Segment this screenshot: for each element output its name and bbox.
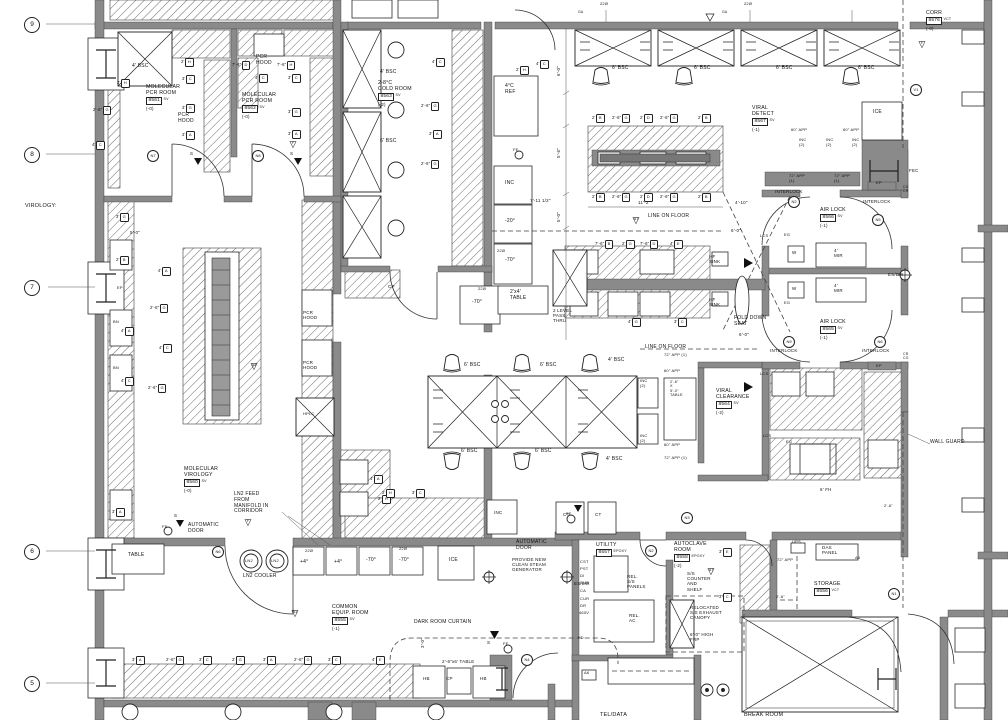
room-stamp: MOLECULARPCR ROOM8561SV(-0) [146, 84, 180, 111]
casework-tag: 2'-6"G [148, 384, 166, 393]
casework-tag: 3'C [412, 489, 425, 498]
plan-label: 72" APP (1) [664, 456, 687, 461]
plan-label: CR CG [903, 352, 909, 360]
casework-tag: 3'E [719, 548, 732, 557]
door-tag: N5 [872, 214, 884, 226]
room-stamp: COMMONEQUIP. ROOM8555SV(-1) [332, 604, 369, 631]
plan-label: 2 LEVEL PASS THRU [553, 308, 572, 324]
plan-label: TABLE [128, 553, 144, 559]
plan-label: BN [113, 366, 119, 371]
plan-label: 4'-10" [735, 200, 748, 205]
door-tag: N3 [681, 512, 693, 524]
plan-label: +4° [334, 560, 342, 566]
casework-tag: 3'A [182, 131, 195, 140]
casework-tag: 4'C [159, 344, 172, 353]
plan-label: FE [503, 642, 509, 647]
plan-label: LINE ON FLOOR [645, 345, 686, 351]
plan-label: ICE [449, 558, 458, 564]
casework-tag: 3'A [288, 130, 301, 139]
plan-label: 4' BSC [132, 64, 149, 70]
casework-tag: 4'A [370, 475, 383, 484]
casework-tag: 4'C [255, 74, 268, 83]
plan-label: -70° [399, 558, 409, 564]
plan-label: 72" APP (1) [664, 353, 687, 358]
plan-label: PST [580, 567, 588, 572]
plan-label: PROVIDE NEW CLEAN STEAM GENERATOR [512, 557, 546, 573]
plan-label: DI [580, 574, 584, 579]
plan-label: 6' BSC [540, 363, 557, 369]
plan-label: INC (2) [799, 138, 807, 147]
plan-label: CST [580, 560, 589, 565]
room-stamp: AUTOCLAVEROOM8558EPOXY(-2) [674, 541, 707, 568]
casework-tag: 3'C [674, 318, 687, 327]
casework-tag: 2'B [592, 193, 605, 202]
plan-label: S [190, 151, 193, 156]
plan-label: 4' BSC [606, 457, 623, 463]
plan-label: REL. AC [629, 613, 640, 623]
casework-tag: 2'-6"G [421, 102, 439, 111]
plan-label: INC [494, 510, 502, 515]
casework-tag: 2'H [382, 489, 395, 498]
room-stamp: MOLECULARPCR ROOM8562SV(-0) [242, 92, 276, 119]
plan-label: 6' BSC [776, 66, 793, 72]
plan-label: WALL GUARD [930, 440, 965, 446]
plan-label: PCR HOOD [256, 55, 272, 67]
plan-label: DR [580, 604, 586, 609]
room-stamp: CORR8576VCT(-0) [926, 10, 951, 31]
plan-label: PCR HOOD [303, 360, 317, 370]
casework-tag: 2'D [640, 114, 653, 123]
casework-tag: 3'A [112, 508, 125, 517]
casework-tag: 2'-6"G [93, 106, 111, 115]
plan-label: TEL/DATA [600, 712, 627, 718]
door-tag: N9 [783, 336, 795, 348]
plan-label: GA [722, 10, 727, 14]
casework-tag: 2'B [116, 256, 129, 265]
room-stamp: AIR LOCK8566SV(-1) [820, 207, 846, 228]
door-tag: N6 [212, 546, 224, 558]
plan-label: S [487, 640, 490, 645]
plan-label: 5'-0" [130, 230, 140, 235]
door-tag: N6 [874, 336, 886, 348]
plan-label: EP [876, 181, 882, 186]
plan-label: 4' MIR [834, 283, 843, 293]
plan-label: -70° [366, 558, 376, 564]
triangle-tag: ▽A7 [630, 216, 642, 224]
casework-tag: 7'-6"H [277, 61, 295, 70]
casework-tag: 3'A [132, 656, 145, 665]
casework-tag: 3'C [719, 593, 732, 602]
plan-label: CUR [580, 597, 589, 602]
casework-tag: 4'C [92, 141, 105, 150]
triangle-tag: ▽A1 [248, 362, 260, 370]
plan-label: 22Ø [478, 287, 486, 292]
casework-tag: 2'D [640, 193, 653, 202]
plan-label: 4°C REF [505, 84, 516, 96]
plan-label: CG CR [903, 185, 909, 193]
plan-label: FEC [909, 168, 919, 173]
plan-label: -70° [505, 258, 515, 264]
plan-label: 22Ø [305, 549, 313, 554]
plan-label: 6' FH [820, 487, 832, 492]
plan-label: LN2 COOLER [243, 574, 277, 580]
plan-label: EG [784, 233, 790, 238]
plan-label: 7'-11 1/2" [530, 198, 551, 203]
casework-tag: 2'B [698, 114, 711, 123]
casework-tag: 3'C [328, 656, 341, 665]
plan-label: 6'-0" [739, 332, 749, 337]
plan-label: 60" APP [664, 369, 680, 374]
room-stamp: 2-8°CCOLD ROOM8563SV(-2) [378, 80, 412, 107]
casework-tag: 2'H [516, 66, 529, 75]
room-stamp: MOLECULARVIROLOGY8560SV(-0) [184, 466, 218, 493]
plan-label: ICE [873, 110, 882, 116]
plan-label: 6' BSC [461, 449, 478, 455]
plan-label: 6'-0" HIGH FRP [690, 632, 713, 642]
casework-tag: 2'-6"G [166, 656, 184, 665]
room-stamp: VIRALDETECT8567SV(-1) [752, 105, 775, 132]
plan-label: PCR HOOD [303, 310, 317, 320]
plan-label: 5'-6" [556, 148, 561, 158]
labels-layer: 98765MOLECULARPCR ROOM8561SV(-0)MOLECULA… [0, 0, 1008, 720]
plan-label: 22Ø [497, 249, 505, 254]
plan-label: 72" APP (1) [789, 174, 805, 183]
plan-label: 72" APP [777, 558, 793, 563]
plan-label: GA [578, 10, 583, 14]
plan-label: INTERLOCK [770, 348, 798, 353]
plan-label: ES/EW [888, 272, 904, 277]
room-stamp: AIR LOCK8565SV(-1) [820, 319, 846, 340]
plan-label: EG [786, 440, 792, 445]
triangle-tag: ▽F [916, 40, 928, 48]
plan-label: 3'-0" [420, 638, 425, 648]
plan-label: 22Ø [399, 547, 407, 552]
plan-label: INC (2) [852, 138, 860, 147]
plan-label: DARK ROOM CURTAIN [414, 620, 471, 626]
plan-label: +4° [300, 560, 308, 566]
casework-tag: 4'C [432, 58, 445, 67]
plan-label: DAS PANEL [822, 545, 837, 555]
plan-label: CT [563, 512, 569, 517]
casework-tag: 2'B [698, 193, 711, 202]
plan-label: CT [595, 512, 601, 517]
plan-label: 22Ø [744, 2, 752, 7]
room-stamp: VIRALCLEARANCE8564SV(-2) [716, 388, 750, 415]
plan-label: HB [480, 676, 487, 681]
casework-tag: 2'-6"G [612, 193, 630, 202]
plan-label: EG [784, 301, 790, 306]
plan-label: 4' BSC [380, 70, 397, 76]
plan-label: BN [113, 320, 119, 325]
grid-bubble: 7 [24, 280, 40, 296]
plan-label: FOLD DOWN SEAT [734, 316, 766, 328]
plan-label: CUB [580, 581, 589, 586]
casework-tag: 7'-6"D [232, 61, 250, 70]
plan-label: 6' BSC [858, 66, 875, 72]
plan-label: 2'x4' TABLE [510, 290, 526, 302]
plan-label: INC (2) [640, 434, 648, 443]
triangle-tag: ▽F [287, 140, 299, 148]
casework-tag: 3'C [199, 656, 212, 665]
plan-label: INTERLOCK [775, 189, 803, 194]
plan-label: 60" APP [664, 443, 680, 448]
casework-tag: 2'-6"G [660, 193, 678, 202]
casework-tag: 3'A [429, 130, 442, 139]
plan-label: 4' BSC [608, 358, 625, 364]
plan-label: VIROLOGY: [25, 203, 57, 209]
plan-label: 6' BSC [535, 449, 552, 455]
plan-label: LCS [760, 234, 768, 239]
plan-label: CP [446, 676, 453, 681]
door-tag: N4 [521, 654, 533, 666]
plan-label: S [174, 513, 177, 518]
room-stamp: UTILITY8557EPOXY [596, 542, 627, 557]
plan-label: UPS [792, 540, 801, 545]
plan-label: 4' MIR [834, 248, 843, 258]
plan-label: 5'-0" [556, 212, 561, 222]
casework-tag: 2'-6"G [150, 304, 168, 313]
grid-bubble: 5 [24, 676, 40, 692]
casework-tag: 4'A [158, 267, 171, 276]
casework-tag: 3'G [182, 104, 195, 113]
door-tag: V1 [910, 84, 922, 96]
plan-label: LN2 [271, 559, 279, 564]
plan-label: 60" APP [843, 128, 859, 133]
plan-label: LINE ON FLOOR [648, 214, 689, 220]
triangle-tag: ▽A1 [289, 609, 301, 617]
plan-label: INTERLOCK [863, 199, 891, 204]
plan-label: FE [162, 525, 168, 530]
casework-tag: 2'-6"G [421, 160, 439, 169]
plan-label: HPLC [303, 412, 314, 417]
plan-label: INTERLOCK [862, 348, 890, 353]
plan-label: 60" APP [791, 128, 807, 133]
plan-label: AUTOMATIC DOOR [188, 523, 219, 535]
casework-tag: 3'C [288, 74, 301, 83]
casework-tag: 3'G [288, 108, 301, 117]
plan-label: HF SINK [709, 297, 720, 307]
plan-label: S [290, 151, 293, 156]
door-tag: N2 [645, 545, 657, 557]
casework-tag: 4'C [121, 377, 134, 386]
plan-label: 2'-6"x6' TABLE [442, 659, 474, 664]
plan-label: LN2 FEED FROM MANIFOLD IN CORRIDOR [234, 492, 268, 515]
plan-label: 72" APP (1) [834, 174, 850, 183]
grid-bubble: 8 [24, 147, 40, 163]
room-stamp: STORAGE8556VCT [814, 581, 841, 596]
plan-label: A6 [584, 671, 589, 676]
plan-label: BREAK ROOM [744, 712, 783, 718]
door-tag: N2 [788, 196, 800, 208]
casework-tag: 2'G [232, 656, 245, 665]
plan-label: LCS [763, 434, 771, 439]
casework-tag: 2'H [181, 58, 194, 67]
triangle-tag: ▽F [242, 518, 254, 526]
casework-tag: 4'A [121, 327, 134, 336]
plan-label: EP [876, 364, 882, 369]
plan-label: AUTOMATIC DOOR [516, 540, 547, 552]
casework-tag: 7'-6"B [595, 240, 613, 249]
plan-label: 2'-6" X 5'-0" TABLE [670, 380, 683, 397]
plan-label: FE [513, 148, 519, 153]
plan-label: LCS [760, 372, 768, 377]
casework-tag: 4'E [372, 656, 385, 665]
plan-label: -70° [472, 300, 482, 306]
casework-tag: 7'-6"D [640, 240, 658, 249]
plan-label: HF SINK [709, 254, 720, 264]
plan-label: A5 [855, 556, 860, 561]
casework-tag: 4'G [628, 318, 641, 327]
casework-tag: 3'A [263, 656, 276, 665]
grid-bubble: 9 [24, 17, 40, 33]
plan-label: W [792, 286, 796, 291]
door-tag: N8 [252, 150, 264, 162]
casework-tag: 4'C [536, 60, 549, 69]
plan-label: W [792, 250, 796, 255]
plan-label: 460V [579, 611, 589, 616]
casework-tag: 2'-6"G [612, 114, 630, 123]
plan-label: 6' BSC [464, 363, 481, 369]
grid-bubble: 6 [24, 544, 40, 560]
plan-label: 6' BSC [694, 66, 711, 72]
casework-tag: 2'-6"G [660, 114, 678, 123]
plan-label: 6' BSC [380, 139, 397, 145]
plan-label: 2'-6" [884, 504, 893, 509]
door-tag: N7 [147, 150, 159, 162]
plan-label: -20° [505, 219, 515, 225]
floor-plan: 98765MOLECULARPCR ROOM8561SV(-0)MOLECULA… [0, 0, 1008, 720]
plan-label: 6'-0" [556, 66, 561, 76]
door-tag: N1 [888, 588, 900, 600]
plan-label: EP [117, 286, 123, 291]
plan-label: 6' BSC [612, 66, 629, 72]
plan-label: INC (2) [826, 138, 834, 147]
plan-label: INC [505, 181, 514, 187]
casework-tag: 2'G [622, 240, 635, 249]
casework-tag: 3'C [182, 75, 195, 84]
casework-tag: 2'-6"G [294, 656, 312, 665]
plan-label: HB [423, 676, 430, 681]
plan-label: 2'-6" [776, 595, 785, 600]
plan-label: 6'-0" [731, 228, 741, 233]
casework-tag: 4'E [670, 240, 683, 249]
casework-tag: 2'H [117, 79, 130, 88]
plan-label: LN2 [245, 559, 253, 564]
casework-tag: 2'B [592, 114, 605, 123]
plan-label: RELOCATED S/S EXHAUST CANOPY [690, 605, 722, 621]
plan-label: REL. S/S PANELS [627, 574, 646, 590]
plan-label: PCR HOOD [178, 113, 194, 125]
triangle-tag: ▽A7 [705, 567, 717, 575]
plan-label: CA [580, 589, 586, 594]
casework-tag: 3'G [116, 213, 129, 222]
plan-label: CP [388, 284, 395, 289]
plan-label: INC (2) [640, 379, 648, 388]
plan-label: FD [578, 636, 584, 641]
plan-label: 22Ø [600, 2, 608, 7]
